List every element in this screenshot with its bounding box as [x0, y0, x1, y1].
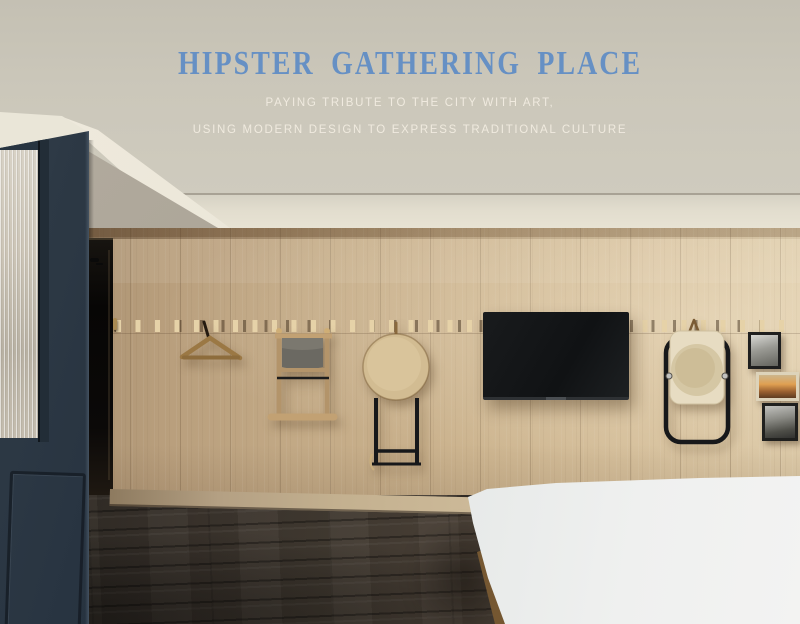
picture-frame-bottom [762, 403, 798, 441]
hotel-room-photo: HIPSTER GATHERING PLACE PAYING TRIBUTE T… [0, 0, 800, 624]
door-lower-panel [4, 471, 86, 624]
mirror-reflection [108, 250, 110, 480]
wall-top-shadow [0, 228, 800, 239]
picture-frame-middle [756, 372, 799, 401]
subtitle-line-2: USING MODERN DESIGN TO EXPRESS TRADITION… [30, 120, 790, 141]
folded-chair [658, 316, 734, 448]
coat-hanger-icon [178, 320, 244, 364]
door-edge-highlight [85, 131, 89, 624]
coat-hook-icon [90, 258, 99, 262]
folding-valet-rack [266, 318, 338, 428]
door-stile [38, 140, 49, 442]
round-folding-stool [358, 318, 438, 470]
brass-handle [113, 318, 117, 330]
frosted-glass-panel [0, 150, 38, 438]
tv-logo-notch [546, 397, 566, 400]
subtitle-line-1: PAYING TRIBUTE TO THE CITY WITH ART, [30, 93, 790, 114]
television [483, 312, 629, 400]
text-overlay: HIPSTER GATHERING PLACE PAYING TRIBUTE T… [30, 0, 790, 141]
page-title: HIPSTER GATHERING PLACE [178, 47, 642, 81]
picture-frame-top [748, 332, 781, 369]
